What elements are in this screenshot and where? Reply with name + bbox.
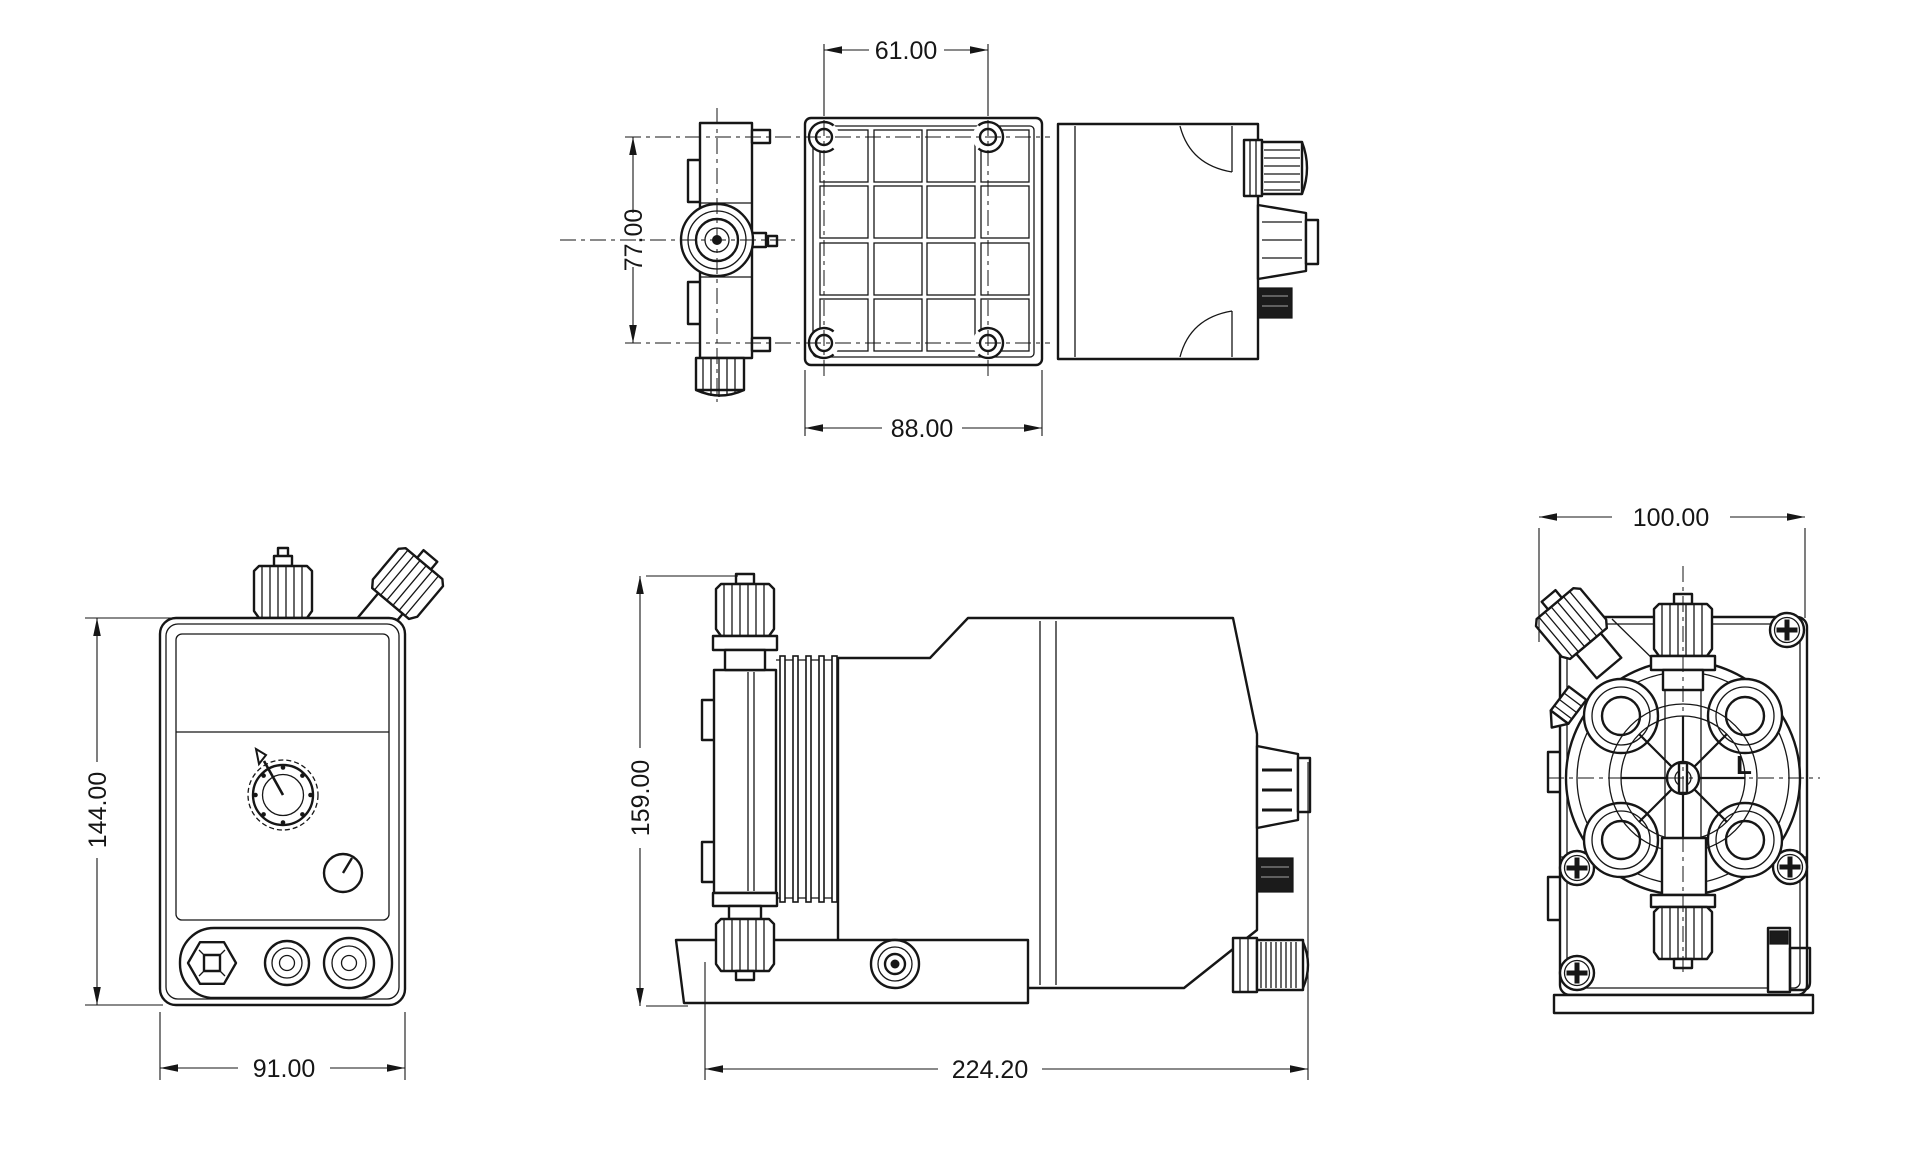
- dim-text-144: 144.00: [84, 772, 112, 848]
- phillips-screw: [1770, 613, 1804, 647]
- cable-gland-top-view: [1244, 140, 1307, 196]
- head-size-marking: L: [1736, 750, 1752, 780]
- side-view: [676, 574, 1310, 1003]
- phillips-screw: [1560, 956, 1594, 990]
- suction-valve-side: [713, 893, 777, 980]
- dim-text-159: 159.00: [627, 760, 655, 836]
- cable-gland-side: [1233, 938, 1308, 992]
- dim-text-88: 88.00: [891, 415, 954, 443]
- technical-drawing-svg: L: [0, 0, 1920, 1171]
- dim-text-224: 224.20: [952, 1056, 1028, 1084]
- foot-bolt: [871, 940, 919, 988]
- motor-housing-side: [838, 618, 1257, 988]
- rear-view: L: [1526, 577, 1813, 1013]
- rear-foot-band: [1554, 995, 1813, 1013]
- dim-text-61: 61.00: [875, 37, 938, 65]
- dim-text-77: 77.00: [620, 209, 648, 272]
- motor-housing-top: [1058, 124, 1258, 359]
- drawing-canvas: L: [0, 0, 1920, 1171]
- vent-plug-top-view: [1258, 288, 1292, 318]
- dim-text-100: 100.00: [1633, 504, 1709, 532]
- mounting-base-plate: [805, 118, 1042, 365]
- dim-text-91: 91.00: [253, 1055, 316, 1083]
- suction-valve-cap-top: [696, 358, 744, 397]
- vent-plug-side: [1257, 858, 1293, 892]
